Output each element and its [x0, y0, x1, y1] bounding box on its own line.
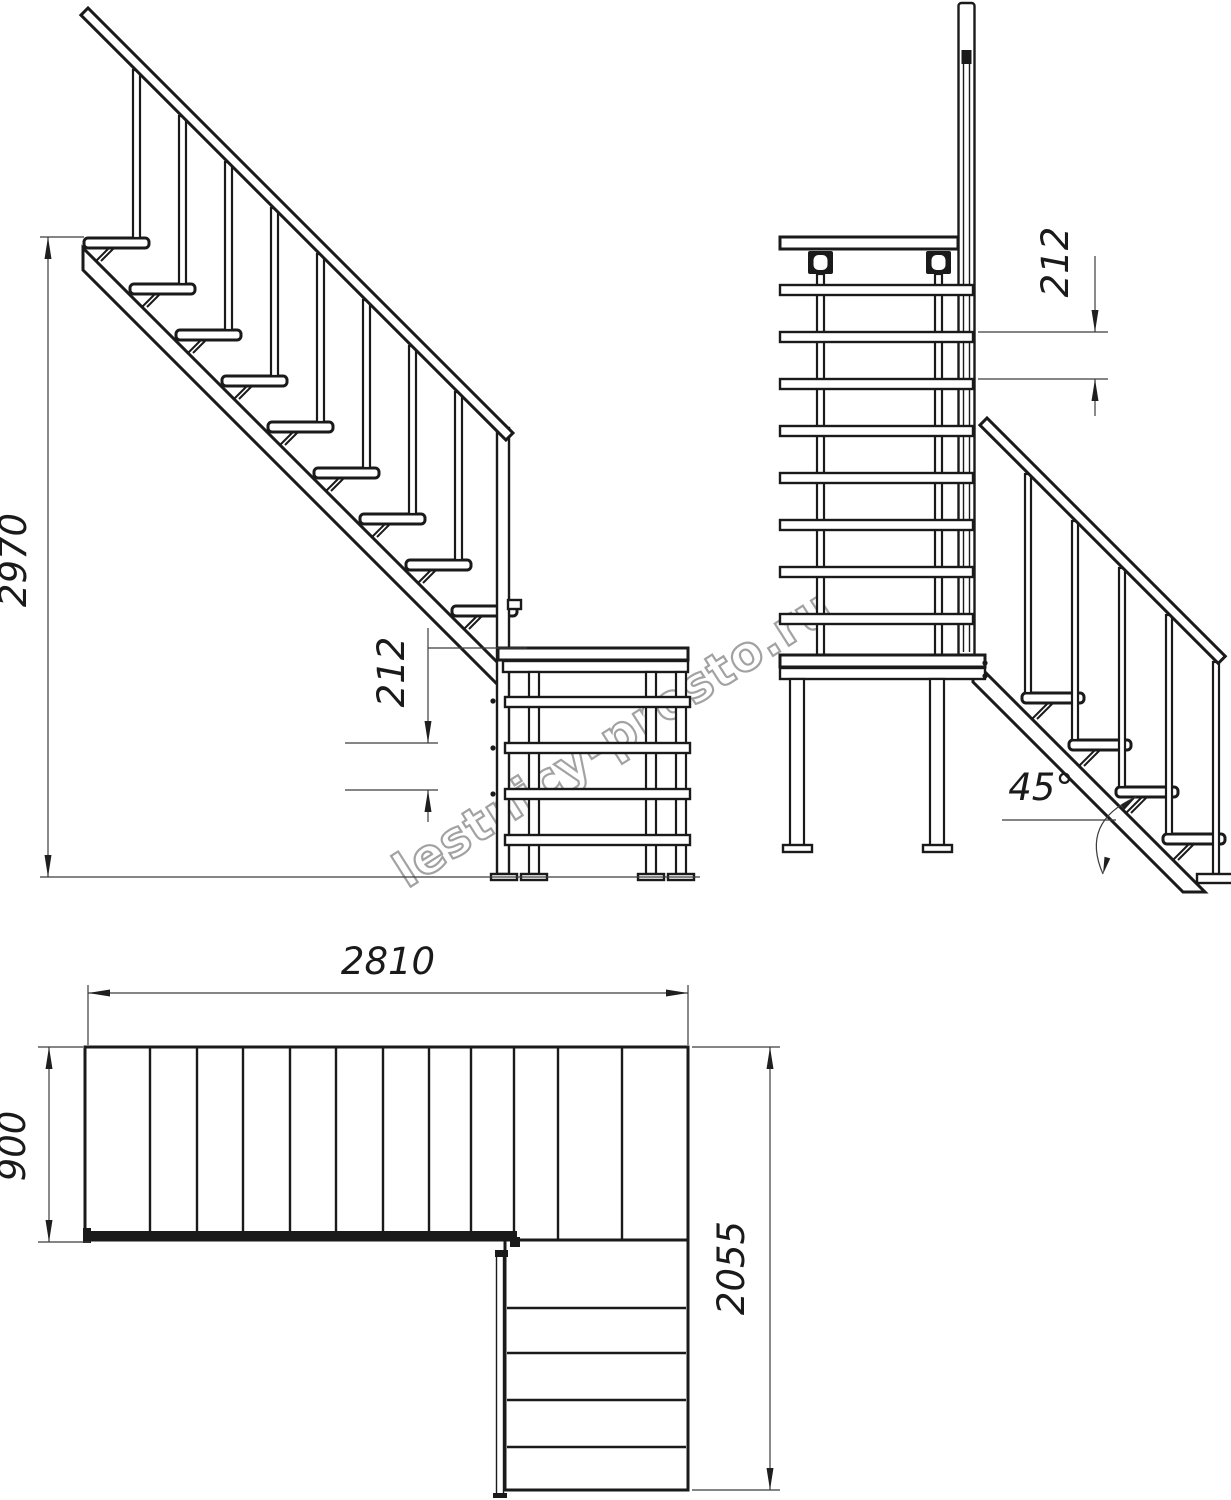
edge-tread: [780, 332, 973, 342]
blueprint-page: lestnicy-prosto.ru: [0, 0, 1231, 1500]
landing-leg: [790, 679, 804, 847]
handrail: [81, 8, 513, 440]
landing-frame: [503, 661, 688, 672]
baluster: [271, 208, 278, 376]
baluster: [179, 116, 186, 284]
edge-tread: [505, 835, 690, 845]
dim-label-angle: 45°: [1008, 766, 1074, 809]
bolt: [490, 791, 495, 796]
baluster: [1072, 521, 1078, 740]
baluster: [1025, 474, 1031, 693]
edge-tread: [505, 789, 690, 799]
edge-tread: [780, 614, 973, 624]
handrail-post: [959, 3, 975, 657]
baluster: [1213, 662, 1219, 874]
dim-label-plan-length: 2810: [341, 940, 435, 983]
tread-braces: [96, 247, 483, 629]
dimension-rise-right: 212: [978, 227, 1108, 416]
tread: [222, 376, 287, 386]
edge-tread: [780, 567, 973, 577]
landing-deck: [780, 655, 985, 667]
baluster: [225, 162, 232, 330]
staircase-drawing: lestnicy-prosto.ru: [0, 0, 1231, 1500]
handrail-joint: [962, 50, 972, 64]
edge-tread: [505, 743, 690, 753]
handrail-cap: [83, 1228, 91, 1243]
dimension-plan-depth: 2055: [692, 1047, 780, 1490]
handrail-cap: [493, 1493, 507, 1498]
foot-plate: [923, 845, 952, 852]
landing-top-rail: [780, 237, 958, 249]
lower-flight-plan: [505, 1240, 688, 1490]
baluster: [363, 300, 370, 468]
edge-tread: [780, 520, 973, 530]
edge-tread: [780, 426, 973, 436]
side-elevation-view: [81, 8, 694, 880]
stringer: [83, 248, 500, 687]
edge-tread: [780, 473, 973, 483]
landing-deck: [498, 648, 688, 660]
landing-leg: [930, 679, 944, 847]
tread: [130, 284, 195, 294]
dimension-plan-length: 2810: [88, 940, 688, 1045]
bracket-hole: [814, 255, 828, 270]
baluster: [455, 392, 462, 560]
lower-handrail-plan: [497, 1251, 504, 1497]
dim-label-total-height: 2970: [0, 513, 35, 607]
bolt: [982, 660, 987, 665]
front-elevation-view: [780, 3, 1231, 892]
dim-label-rise-right: 212: [1034, 227, 1077, 298]
foot-plate: [1197, 874, 1231, 883]
bracket-hole: [932, 255, 946, 270]
bolt: [490, 745, 495, 750]
edge-tread: [505, 697, 690, 707]
plan-view: [83, 1047, 688, 1498]
edge-tread: [780, 285, 973, 295]
dimension-plan-width: 900: [0, 1047, 90, 1242]
baluster: [409, 346, 416, 514]
tread: [360, 514, 425, 524]
dim-label-plan-depth: 2055: [710, 1221, 753, 1315]
dim-label-plan-width: 900: [0, 1111, 34, 1182]
tread: [176, 330, 241, 340]
tread: [314, 468, 379, 478]
bolt: [490, 698, 495, 703]
tread: [84, 238, 149, 248]
baluster: [1166, 615, 1172, 834]
handrail: [980, 418, 1225, 663]
tread: [406, 560, 471, 570]
dim-label-rise-left: 212: [370, 637, 413, 708]
foot-plate: [783, 845, 812, 852]
upper-flight-plan: [85, 1047, 688, 1240]
edge-tread: [780, 379, 973, 389]
baluster: [133, 70, 140, 238]
handrail-cap: [495, 1250, 508, 1257]
baluster: [1119, 568, 1125, 787]
handrail-plan: [85, 1231, 517, 1241]
baluster: [317, 254, 324, 422]
landing-frame: [780, 668, 985, 679]
tread: [268, 422, 333, 432]
bolt: [982, 673, 987, 678]
handrail-cap: [510, 1237, 520, 1247]
rail-bracket: [508, 600, 521, 609]
